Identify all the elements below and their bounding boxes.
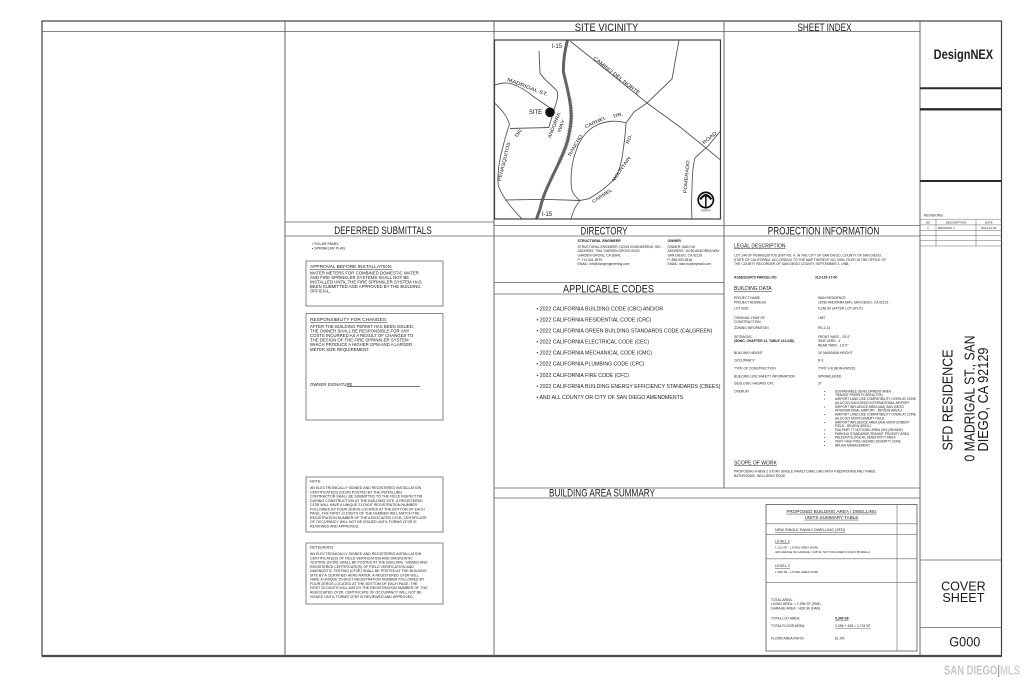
svg-text:R-3: R-3: [818, 359, 823, 363]
svg-text:• AND ALL COUNTY OR CITY OF SA: • AND ALL COUNTY OR CITY OF SAN DIEGO AM…: [537, 395, 684, 401]
svg-text:• 2022 CALIFORNIA ELECTRICAL C: • 2022 CALIFORNIA ELECTRICAL CODE (CEC): [537, 340, 650, 346]
svg-text:GARAGE AREA: =428 SF (FAR): GARAGE AREA: =428 SF (FAR): [771, 606, 820, 610]
svg-text:• 2022 CALIFORNIA BUILDING ENE: • 2022 CALIFORNIA BUILDING ENERGY EFFICI…: [537, 384, 721, 390]
svg-text:DIEGO, CA 92129: DIEGO, CA 92129: [975, 348, 992, 452]
svg-text:SFD RESIDENCE: SFD RESIDENCE: [940, 350, 957, 451]
svg-text:ASSESSOR'S PARCEL NO.: ASSESSOR'S PARCEL NO.: [734, 276, 778, 280]
svg-text:• 2022 CALIFORNIA GREEN BUILDI: • 2022 CALIFORNIA GREEN BUILDING STANDAR…: [537, 328, 713, 334]
svg-text:UNITS SUMMARY TABLE: UNITS SUMMARY TABLE: [805, 515, 859, 520]
svg-text:GEOLOGIC HAZARD CAT.: GEOLOGIC HAZARD CAT.: [734, 382, 774, 386]
svg-text:SCOPE OF WORK: SCOPE OF WORK: [734, 461, 777, 467]
svg-text:OCCUPANCY: OCCUPANCY: [734, 359, 756, 363]
svg-text:NOTE:: NOTE:: [310, 480, 321, 484]
svg-text:NOTE(HERS):: NOTE(HERS):: [310, 546, 334, 550]
svg-text:PROJECTION INFORMATION: PROJECTION INFORMATION: [768, 225, 880, 237]
svg-text:TYPE V-B (NON-RATED): TYPE V-B (NON-RATED): [818, 367, 855, 371]
svg-text:EMAIL: wan.hu@mymail.com: EMAIL: wan.hu@mymail.com: [668, 262, 712, 266]
svg-text:LOT SIZE: LOT SIZE: [734, 307, 749, 311]
svg-text:• 2022 CALIFORNIA BUILDING COD: • 2022 CALIFORNIA BUILDING CODE (CBC) AN…: [537, 306, 664, 312]
svg-text:OWNER SIGNATURE: OWNER SIGNATURE: [310, 382, 353, 387]
svg-text:• 2022 CALIFORNIA PLUMBING COD: • 2022 CALIFORNIA PLUMBING CODE (CPC): [537, 362, 645, 368]
svg-text:DEFERRED SUBMITTALS: DEFERRED SUBMITTALS: [334, 225, 432, 237]
svg-text:SPRINKLERED: SPRINKLERED: [818, 374, 842, 378]
svg-text:TOTAL FLOOR AREA:: TOTAL FLOOR AREA:: [771, 624, 805, 628]
svg-text:SITE: SITE: [529, 109, 543, 116]
svg-text:REVISION 1: REVISION 1: [938, 226, 955, 230]
svg-text:• 2022 CALIFORNIA RESIDENTIAL: • 2022 CALIFORNIA RESIDENTIAL CODE (CRC): [537, 317, 652, 323]
svg-text:1,110 SF - LIVING AREA (FAR): 1,110 SF - LIVING AREA (FAR): [775, 546, 818, 550]
svg-text:PROJECT ADDRESS: PROJECT ADDRESS: [734, 300, 767, 304]
svg-text:CONSTRUCTION: CONSTRUCTION: [734, 320, 761, 324]
svg-text:I-15: I-15: [552, 43, 563, 50]
svg-text:OVERLAY: OVERLAY: [734, 389, 750, 393]
svg-text:LEGAL DESCRIPTION: LEGAL DESCRIPTION: [734, 244, 786, 250]
svg-text:REAR YARD - 13'-0": REAR YARD - 13'-0": [818, 343, 849, 347]
svg-text:2,296 + 428 = 2,724 SF: 2,296 + 428 = 2,724 SF: [835, 624, 871, 628]
svg-text:5,248 SF (AFTER LOT SPLIT): 5,248 SF (AFTER LOT SPLIT): [818, 307, 863, 311]
svg-text:BRUSH MANAGEMENT: BRUSH MANAGEMENT: [835, 443, 870, 447]
svg-text:NORTH: NORTH: [701, 208, 711, 212]
svg-text:METER SIZE REQUIREMENT.: METER SIZE REQUIREMENT.: [310, 347, 369, 352]
svg-text:FLOOR AREA RATIO:: FLOOR AREA RATIO:: [771, 637, 805, 641]
svg-text:REVIEWED AND APPROVED.: REVIEWED AND APPROVED.: [310, 525, 359, 529]
svg-text:BATHROOMS, INCLUDING EDGE: BATHROOMS, INCLUDING EDGE: [734, 474, 786, 478]
svg-text:1,186 SF - LIVING AREA (FAR): 1,186 SF - LIVING AREA (FAR): [775, 570, 818, 574]
svg-text:OWNER: OWNER: [668, 239, 682, 243]
svg-text:313-120-17-00: 313-120-17-00: [815, 276, 837, 280]
svg-text:LEVEL 2: LEVEL 2: [775, 564, 790, 568]
svg-text:BUILDING LIFE SAFETY INFORMATI: BUILDING LIFE SAFETY INFORMATION: [734, 374, 795, 378]
svg-text:DIRECTORY: DIRECTORY: [581, 225, 628, 237]
svg-text:5,340 SF: 5,340 SF: [835, 617, 849, 621]
svg-text:SHEET INDEX: SHEET INDEX: [798, 22, 852, 34]
svg-text:SAN DIEGO|MLS: SAN DIEGO|MLS: [944, 662, 1020, 677]
svg-text:G000: G000: [949, 634, 980, 649]
svg-text:LEVEL 1: LEVEL 1: [775, 540, 790, 544]
svg-text:REVISIONS:: REVISIONS:: [924, 214, 943, 218]
svg-text:TYPE OF CONSTRUCTION: TYPE OF CONSTRUCTION: [734, 367, 776, 371]
svg-text:ZONING INFORMTION: ZONING INFORMTION: [734, 326, 769, 330]
svg-text:NEW SINGLE FAMILY DWELLING (SF: NEW SINGLE FAMILY DWELLING (SFD): [775, 528, 846, 532]
svg-text:2024-12-06: 2024-12-06: [981, 226, 997, 230]
svg-text:16780 ANDORRA WAY, SAN DIEGO,: 16780 ANDORRA WAY, SAN DIEGO, CA 92129: [818, 300, 888, 304]
svg-text:ISSUED UNTIL FORMS CF3R IS REV: ISSUED UNTIL FORMS CF3R IS REVIEWED AND …: [310, 595, 414, 599]
svg-text:2T: 2T: [818, 382, 822, 386]
svg-text:30' MAXIMUM HEIGHT: 30' MAXIMUM HEIGHT: [818, 351, 853, 355]
svg-text:OFFICIAL.: OFFICIAL.: [310, 289, 331, 294]
svg-text:• SPRINKLER PLAN: • SPRINKLER PLAN: [312, 247, 345, 251]
svg-text:NO: NO: [926, 221, 931, 225]
svg-text:428 GARAGE SF GARAGE = 428 SF,: 428 GARAGE SF GARAGE = 428 SF, NOT INCLU…: [775, 550, 870, 554]
svg-text:• 2022 CALIFORNIA MECHANICAL C: • 2022 CALIFORNIA MECHANICAL CODE (CMC): [537, 351, 653, 357]
svg-text:SITE VICINITY: SITE VICINITY: [575, 22, 639, 34]
svg-text:DESCRIPTION: DESCRIPTION: [946, 221, 967, 225]
svg-text:EMAIL: info@dcngengineering.co: EMAIL: info@dcngengineering.com: [578, 262, 630, 266]
svg-text:• 2022 CALIFORNIA FIRE CODE (C: • 2022 CALIFORNIA FIRE CODE (CFC): [537, 373, 630, 379]
svg-text:BUILDING AREA SUMMARY: BUILDING AREA SUMMARY: [549, 488, 655, 500]
svg-text:TOTAL LOT AREA:: TOTAL LOT AREA:: [771, 617, 800, 621]
svg-text:RESPONSIBILITY FOR CHANGES:: RESPONSIBILITY FOR CHANGES:: [310, 317, 387, 323]
svg-text:SHEET: SHEET: [942, 590, 984, 605]
svg-text:DATE: DATE: [985, 221, 993, 225]
svg-text:BUILDING HEIGHT: BUILDING HEIGHT: [734, 351, 763, 355]
svg-text:RS-1-14: RS-1-14: [818, 326, 830, 330]
svg-text:51.0%: 51.0%: [835, 637, 845, 641]
svg-text:APPROVAL BEFORE INSTALLATION:: APPROVAL BEFORE INSTALLATION:: [310, 264, 392, 270]
svg-text:THE COUNTY RECORDER OF SAN DIE: THE COUNTY RECORDER OF SAN DIEGO COUNTY,…: [734, 262, 849, 266]
svg-text:1987: 1987: [818, 316, 826, 320]
svg-text:BUILDING DATA: BUILDING DATA: [734, 286, 772, 292]
svg-text:(SDMC, CHAPTER 13, TABLE 131-0: (SDMC, CHAPTER 13, TABLE 131-04D): [734, 339, 794, 343]
svg-text:I-15: I-15: [542, 211, 553, 218]
svg-text:PROPOSED BUILDING AREA / DWELL: PROPOSED BUILDING AREA / DWELLING: [786, 509, 877, 514]
svg-text:DesignNEX: DesignNEX: [934, 47, 994, 62]
svg-text:APPLICABLE CODES: APPLICABLE CODES: [563, 283, 654, 295]
svg-text:STRUCTURAL ENGINEER: STRUCTURAL ENGINEER: [578, 239, 622, 243]
